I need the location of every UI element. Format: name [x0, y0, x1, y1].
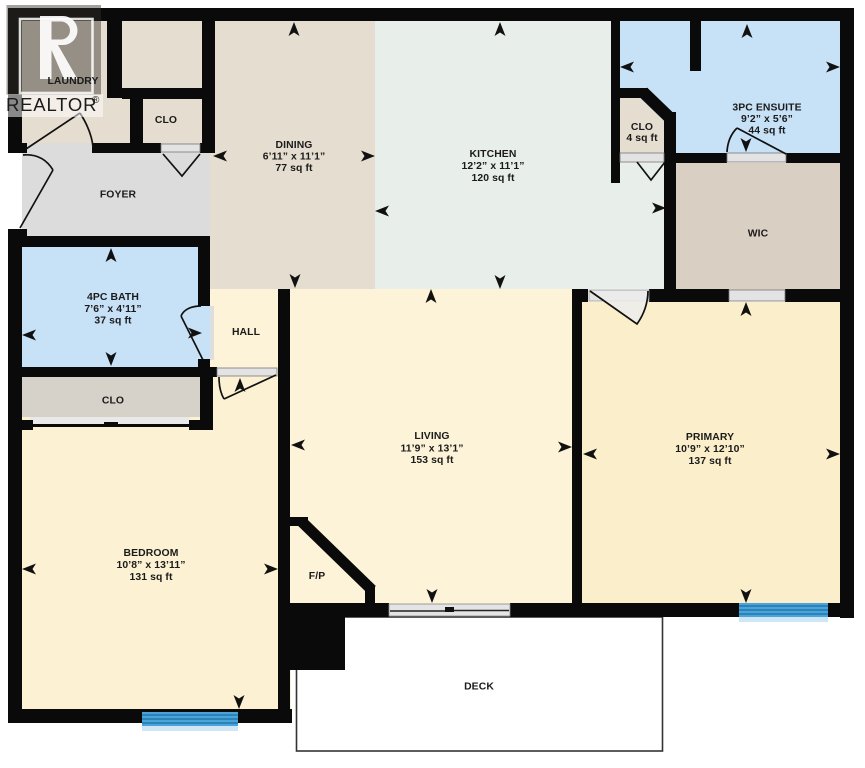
svg-text:LAUNDRY: LAUNDRY — [47, 76, 98, 87]
svg-text:44 sq ft: 44 sq ft — [748, 126, 786, 137]
svg-text:131 sq ft: 131 sq ft — [129, 572, 172, 583]
svg-text:12’2” x 11’1”: 12’2” x 11’1” — [461, 161, 524, 172]
svg-text:37 sq ft: 37 sq ft — [94, 316, 132, 327]
svg-text:BEDROOM: BEDROOM — [124, 548, 179, 559]
svg-text:CLO: CLO — [102, 396, 124, 407]
svg-text:11’9” x 13’1”: 11’9” x 13’1” — [400, 444, 463, 455]
svg-text:FOYER: FOYER — [100, 190, 137, 201]
svg-text:120 sq ft: 120 sq ft — [471, 173, 514, 184]
svg-text:WIC: WIC — [748, 229, 769, 240]
svg-text:CLO: CLO — [155, 115, 177, 126]
svg-text:PRIMARY: PRIMARY — [686, 432, 734, 443]
svg-text:HALL: HALL — [232, 327, 261, 338]
svg-text:9’2” x 5’6”: 9’2” x 5’6” — [741, 114, 793, 125]
svg-text:6’11” x 11’1”: 6’11” x 11’1” — [263, 152, 326, 163]
svg-text:7’6” x 4’11”: 7’6” x 4’11” — [84, 304, 141, 315]
svg-text:137 sq ft: 137 sq ft — [688, 456, 731, 467]
svg-text:DECK: DECK — [464, 682, 494, 693]
svg-text:DINING: DINING — [276, 140, 313, 151]
svg-text:4 sq ft: 4 sq ft — [626, 133, 658, 144]
svg-text:REALTOR: REALTOR — [6, 94, 97, 115]
svg-text:®: ® — [92, 95, 100, 106]
svg-text:77 sq ft: 77 sq ft — [275, 163, 313, 174]
svg-text:3PC ENSUITE: 3PC ENSUITE — [732, 103, 801, 114]
svg-text:LIVING: LIVING — [414, 431, 449, 442]
svg-text:4PC BATH: 4PC BATH — [87, 292, 139, 303]
svg-text:KITCHEN: KITCHEN — [470, 149, 517, 160]
svg-text:F/P: F/P — [309, 571, 325, 582]
svg-text:CLO: CLO — [631, 122, 653, 133]
svg-text:153 sq ft: 153 sq ft — [410, 455, 453, 466]
svg-text:10’9” x 12’10”: 10’9” x 12’10” — [675, 444, 745, 455]
svg-text:10’8” x 13’11”: 10’8” x 13’11” — [117, 560, 186, 571]
